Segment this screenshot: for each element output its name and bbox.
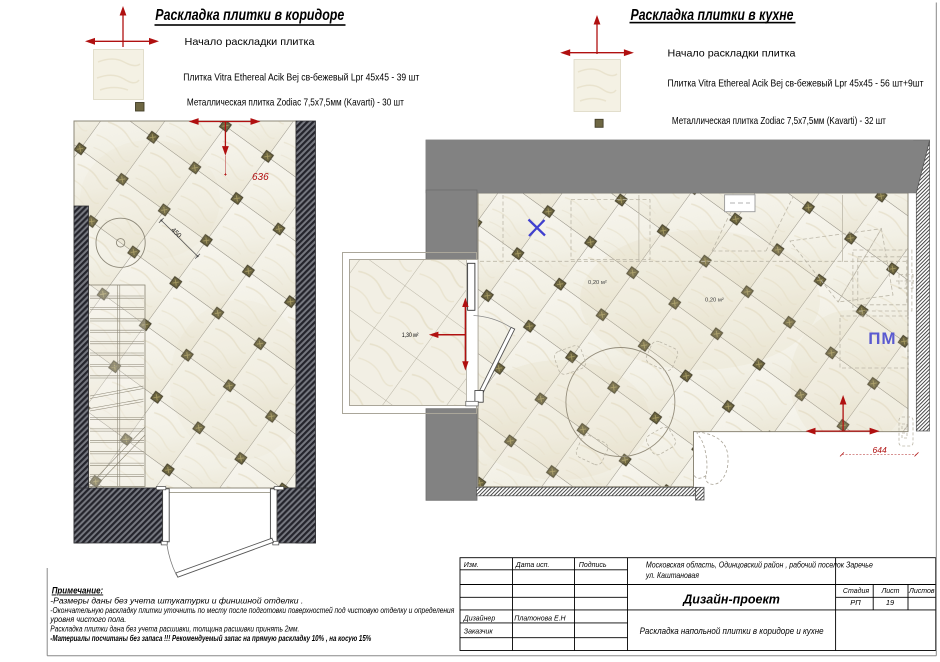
svg-text:Изм.: Изм. xyxy=(464,562,479,569)
svg-text:ул. Каштановая: ул. Каштановая xyxy=(645,570,699,580)
svg-text:Листов: Листов xyxy=(908,588,935,595)
svg-text:636: 636 xyxy=(252,172,269,183)
svg-text:0,20 м²: 0,20 м² xyxy=(588,280,607,286)
svg-text:-Материалы посчитаны без запас: -Материалы посчитаны без запаса !!! Реко… xyxy=(50,634,371,643)
svg-text:Подпись: Подпись xyxy=(579,561,607,569)
svg-text:0,20 м²: 0,20 м² xyxy=(705,298,724,304)
svg-text:Металлическая плитка Zodiac 7,: Металлическая плитка Zodiac 7,5х7,5мм (K… xyxy=(672,116,886,127)
svg-text:Раскладка плитки в кухне: Раскладка плитки в кухне xyxy=(631,7,794,24)
svg-text:644: 644 xyxy=(873,445,887,455)
svg-text:Начало раскладки плитка: Начало раскладки плитка xyxy=(668,48,796,59)
svg-text:Плитка Vitra Ethereal Acik B: Плитка Vitra Ethereal Acik Bej св-бежевы… xyxy=(668,77,924,89)
svg-text:Раскладка напольной плитки в к: Раскладка напольной плитки в коридоре и … xyxy=(640,626,824,637)
svg-text:РП: РП xyxy=(850,598,861,607)
svg-text:Лист: Лист xyxy=(880,588,899,595)
svg-text:Стадия: Стадия xyxy=(843,587,869,595)
svg-text:Начало раскладки плитка: Начало раскладки плитка xyxy=(185,37,315,48)
svg-text:-Окончательную раскладку плитк: -Окончательную раскладку плитки уточнить… xyxy=(50,606,455,615)
svg-text:Московская область, Одинцовски: Московская область, Одинцовский район , … xyxy=(646,559,873,569)
svg-text:Дата исп.: Дата исп. xyxy=(515,562,550,569)
svg-text:-Размеры даны без учета штукат: -Размеры даны без учета штукатурки и фин… xyxy=(50,596,303,605)
svg-text:Платонова Е.Н: Платонова Е.Н xyxy=(514,616,566,623)
svg-text:Металлическая плитка Zodiac 7,: Металлическая плитка Zodiac 7,5х7,5мм (K… xyxy=(187,98,404,109)
svg-text:Раскладка плитки дана без учет: Раскладка плитки дана без учета расшивки… xyxy=(50,624,299,633)
svg-text:Плитка Vitra Ethereal Acik B: Плитка Vitra Ethereal Acik Bej св-бежевы… xyxy=(183,71,419,83)
svg-text:1,30 м²: 1,30 м² xyxy=(402,332,419,339)
svg-text:Раскладка плитки в коридоре: Раскладка плитки в коридоре xyxy=(155,7,344,24)
svg-text:19: 19 xyxy=(886,598,895,607)
svg-text:Примечание:: Примечание: xyxy=(52,586,103,596)
svg-text:уровня чистого пола.: уровня чистого пола. xyxy=(49,615,126,624)
svg-text:Дизайн-проект: Дизайн-проект xyxy=(682,592,780,606)
svg-text:Дизайнер: Дизайнер xyxy=(463,615,496,623)
svg-text:Заказчик: Заказчик xyxy=(464,629,494,636)
svg-text:ПМ: ПМ xyxy=(868,329,896,348)
